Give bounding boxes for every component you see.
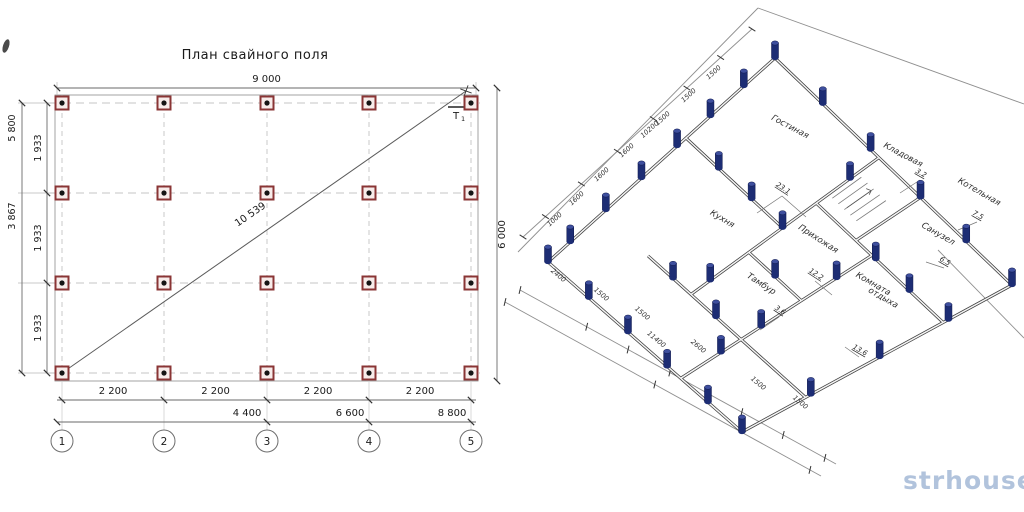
pile-post <box>704 385 711 404</box>
pile-marker <box>158 367 171 380</box>
pile-marker <box>56 367 69 380</box>
technical-drawing: 9 0006 0005 8003 8671 9331 9331 9332 200… <box>0 0 1024 512</box>
svg-text:1 933: 1 933 <box>33 224 44 251</box>
pile-post <box>758 309 765 328</box>
area-callout: 3.2 <box>914 167 928 180</box>
pile-marker <box>363 187 376 200</box>
dim-label: 2400 <box>549 267 567 284</box>
svg-text:2 200: 2 200 <box>99 386 128 397</box>
dim-label: 1000 <box>546 211 564 229</box>
pile-field-plan: 9 0006 0005 8003 8671 9331 9331 9332 200… <box>1 38 508 452</box>
dim-tick <box>542 214 549 218</box>
pile-post <box>872 242 879 261</box>
svg-text:4: 4 <box>366 436 373 448</box>
room-label: Гостиная <box>770 113 811 141</box>
axis-bubble: 1 <box>51 430 73 452</box>
grillage-outline <box>55 95 478 381</box>
blueprint-canvas: 9 0006 0005 8003 8671 9331 9331 9332 200… <box>0 0 1024 512</box>
svg-text:3 867: 3 867 <box>7 202 18 229</box>
pile-plan-title: План свайного поля <box>148 48 362 63</box>
pile-post <box>545 245 552 264</box>
pile-post <box>963 224 970 243</box>
pile-post <box>602 193 609 212</box>
dim-label: 1500 <box>705 64 723 82</box>
pile-post <box>674 129 681 148</box>
pile-post <box>717 335 724 354</box>
pile-marker <box>261 367 274 380</box>
pile-marker <box>56 187 69 200</box>
room-label: Котельная <box>956 176 1002 209</box>
pile-post <box>1009 268 1016 287</box>
pile-marker <box>465 277 478 290</box>
pile-marker <box>261 97 274 110</box>
svg-text:5: 5 <box>468 436 475 448</box>
area-callout: 6.5 <box>938 255 952 268</box>
pile-marker <box>363 367 376 380</box>
pile-marker <box>465 97 478 110</box>
area-callout: 3.6 <box>773 304 787 317</box>
pile-marker <box>158 277 171 290</box>
dim-label: 1500 <box>633 305 651 322</box>
dim-label: 1600 <box>618 142 636 160</box>
pile-post <box>707 263 714 282</box>
dim-label: 1500 <box>680 87 698 105</box>
axis-bubble: 2 <box>153 430 175 452</box>
svg-text:1: 1 <box>59 436 66 448</box>
room-label: Прихожая <box>796 223 840 256</box>
pile-post <box>772 41 779 60</box>
pile-marker <box>158 97 171 110</box>
pile-post <box>748 182 755 201</box>
svg-text:3: 3 <box>264 436 271 448</box>
pile-post <box>779 211 786 230</box>
dim-label: 1600 <box>593 166 611 184</box>
pile-post <box>664 349 671 368</box>
dim-label: 1500 <box>592 286 610 303</box>
dim-label: 11400 <box>645 329 667 349</box>
pile-marker <box>56 97 69 110</box>
dim-tick <box>578 182 585 186</box>
pile-marker <box>261 277 274 290</box>
pile-post <box>624 315 631 334</box>
watermark-text: strhouse.ru <box>903 466 1024 495</box>
dim-tick <box>749 27 756 31</box>
pile-marker <box>158 187 171 200</box>
axis-bubble: 3 <box>256 430 278 452</box>
svg-text:9 000: 9 000 <box>252 74 281 85</box>
axis-bubble: 5 <box>460 430 482 452</box>
axonometric-view: ГостинаяКладоваяКотельнаяКухняПрихожаяСа… <box>504 8 1024 476</box>
pile-marker <box>363 277 376 290</box>
pile-post <box>713 300 720 319</box>
pile-post <box>917 180 924 199</box>
svg-text:10 539: 10 539 <box>233 200 268 229</box>
dim-tick <box>520 235 527 239</box>
pile-post <box>833 261 840 280</box>
pile-post <box>585 281 592 300</box>
axis-bubble: 4 <box>358 430 380 452</box>
svg-text:2: 2 <box>161 436 168 448</box>
pile-marker <box>363 97 376 110</box>
pile-marker <box>56 277 69 290</box>
dim-label: 2600 <box>689 338 707 355</box>
svg-text:Т: Т <box>452 111 460 122</box>
pile-marker <box>261 187 274 200</box>
pile-post <box>715 151 722 170</box>
pile-post <box>876 340 883 359</box>
svg-text:1 933: 1 933 <box>33 314 44 341</box>
svg-text:2 200: 2 200 <box>201 386 230 397</box>
svg-text:2 200: 2 200 <box>406 386 435 397</box>
svg-text:6 600: 6 600 <box>336 408 365 419</box>
svg-text:1: 1 <box>461 115 465 123</box>
pile-post <box>847 162 854 181</box>
area-callout: 23.1 <box>774 181 791 196</box>
svg-text:2 200: 2 200 <box>304 386 333 397</box>
pile-post <box>906 274 913 293</box>
stray-mark <box>1 38 11 53</box>
room-label: Санузел <box>920 221 957 248</box>
svg-text:1 933: 1 933 <box>33 134 44 161</box>
pile-post <box>819 87 826 106</box>
area-callout: 7.5 <box>971 209 985 222</box>
area-callout: 12.2 <box>807 267 825 282</box>
pile-post <box>807 377 814 396</box>
dim-label: 1600 <box>568 190 586 208</box>
pile-post <box>867 132 874 151</box>
room-label: Кухня <box>708 208 736 230</box>
pile-post <box>772 259 779 278</box>
staircase <box>832 177 886 221</box>
pile-post <box>740 69 747 88</box>
pile-post <box>638 161 645 180</box>
area-callout: 13.6 <box>851 343 869 358</box>
pile-marker <box>465 187 478 200</box>
svg-text:4 400: 4 400 <box>233 408 262 419</box>
pile-post <box>670 261 677 280</box>
svg-text:6 000: 6 000 <box>497 220 508 249</box>
pile-post <box>945 302 952 321</box>
svg-text:5 800: 5 800 <box>7 114 18 141</box>
svg-text:8 800: 8 800 <box>438 408 467 419</box>
pile-post <box>567 225 574 244</box>
pile-marker <box>465 367 478 380</box>
dim-label: 1500 <box>749 375 767 392</box>
pile-post <box>739 415 746 434</box>
dim-tick <box>717 55 724 59</box>
pile-post <box>707 99 714 118</box>
